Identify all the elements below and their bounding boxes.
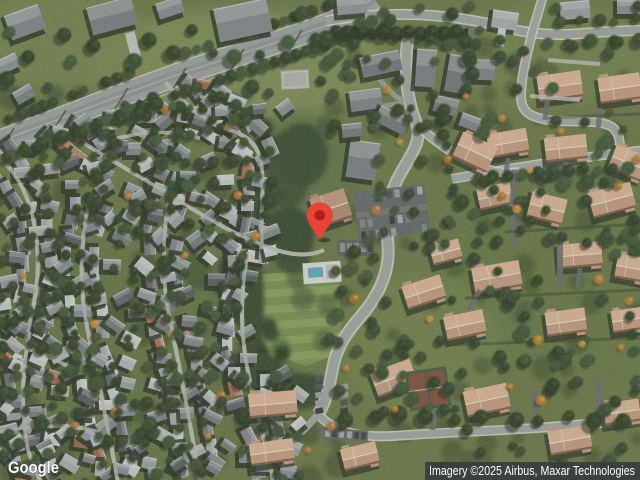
svg-text:Imagery ©2025 Airbus, Maxar Te: Imagery ©2025 Airbus, Maxar Technologies	[429, 463, 635, 478]
svg-text:Google: Google	[8, 458, 59, 477]
